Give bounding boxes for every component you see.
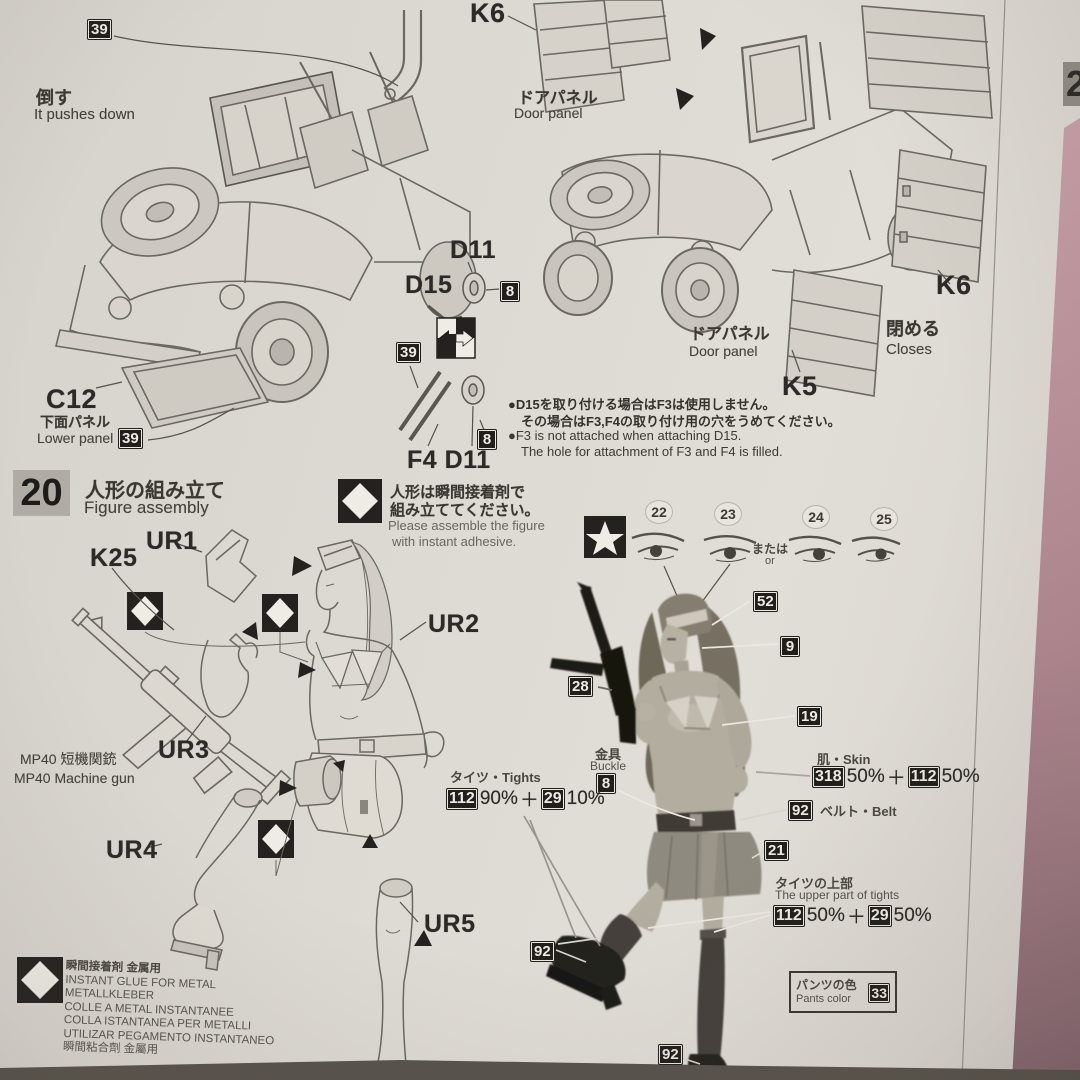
paint-badge-92: 92 <box>530 941 555 962</box>
skin-color-mix: 31850%＋11250% <box>812 763 980 790</box>
closes-label-en: Closes <box>886 341 932 358</box>
plus-sign: ＋ <box>887 763 906 790</box>
step-number-box: 20 <box>13 470 70 516</box>
adhesive-note-en2: with instant adhesive. <box>392 534 516 549</box>
door-panel-right-label-jp: ドアパネル <box>690 320 770 344</box>
paint-badge-52: 52 <box>753 591 778 612</box>
part-label-k25: K25 <box>90 544 137 573</box>
part-label-ur1: UR1 <box>146 527 198 556</box>
paint-badge-39: 39 <box>87 19 112 40</box>
part-label-ur5: UR5 <box>424 910 476 939</box>
part-label-k6-top: K6 <box>470 0 506 29</box>
note-line-3: ●F3 is not attached when attaching D15. <box>508 428 741 443</box>
part-label-ur3: UR3 <box>158 736 210 765</box>
note-line-4: The hole for attachment of F3 and F4 is … <box>521 444 783 459</box>
part-label-d15: D15 <box>405 271 452 300</box>
mix-pct: 90% <box>480 788 518 810</box>
lower-panel-label-en: Lower panel <box>37 430 113 446</box>
left-car-drawing <box>0 0 476 440</box>
mix-pct: 10% <box>567 788 605 810</box>
figure-photo <box>546 582 762 1080</box>
door-panel-right-label-en: Door panel <box>689 343 758 359</box>
part-label-ur4: UR4 <box>106 836 158 865</box>
plus-sign: ＋ <box>520 785 539 812</box>
adhesive-note-jp2: 組み立ててください。 <box>390 499 540 520</box>
paint-badge-92: 92 <box>788 800 813 821</box>
part-label-f4-d11: F4 D11 <box>407 446 491 475</box>
arm-piece <box>201 622 258 717</box>
door-panel-top-label-en: Door panel <box>514 105 583 121</box>
or-label-en: or <box>765 555 775 567</box>
tights-upper-color-mix: 11250%＋2950% <box>773 902 932 929</box>
adhesive-diamond-icon <box>338 479 382 523</box>
buckle-label-en: Buckle <box>590 759 626 773</box>
paint-badge-318: 318 <box>812 766 845 788</box>
tights-label: タイツ・Tights <box>450 767 541 786</box>
paint-badge-29: 29 <box>868 905 892 927</box>
paint-badge-8: 8 <box>477 429 497 450</box>
push-down-label-en: It pushes down <box>34 106 135 123</box>
eye-option-23: 23 <box>714 502 742 526</box>
mix-pct: 50% <box>847 766 885 788</box>
paint-badge-112: 112 <box>773 905 805 927</box>
paint-badge-8: 8 <box>500 281 520 302</box>
part-label-k5: K5 <box>782 371 818 402</box>
adhesive-note-en1: Please assemble the figure <box>388 518 545 533</box>
step-title-en: Figure assembly <box>84 498 209 518</box>
paint-badge-19: 19 <box>797 706 822 727</box>
both-sides-symbol <box>437 318 475 358</box>
glue-diamond-bottom-icon <box>17 957 63 1003</box>
instruction-sheet-photo: 39 倒す It pushes down C12 下面パネル Lower pan… <box>0 0 1080 1080</box>
belt-label: ベルト・Belt <box>820 801 897 820</box>
paint-badge-33: 33 <box>868 983 890 1003</box>
plus-sign: ＋ <box>847 902 866 929</box>
eye-option-25: 25 <box>870 507 898 531</box>
paint-badge-9: 9 <box>780 636 800 657</box>
paint-badge-39: 39 <box>118 428 143 449</box>
mix-pct: 50% <box>894 905 932 927</box>
paint-badge-92: 92 <box>658 1044 683 1065</box>
paint-badge-28: 28 <box>568 676 593 697</box>
part-label-ur2: UR2 <box>428 610 480 639</box>
part-label-c12: C12 <box>46 384 97 415</box>
part-label-d11: D11 <box>450 236 496 265</box>
eye-option-22: 22 <box>645 500 673 524</box>
pants-color-box: パンツの色 Pants color 33 <box>789 971 897 1013</box>
paint-badge-112: 112 <box>446 788 478 810</box>
tights-color-mix: 11290%＋2910% <box>446 785 605 812</box>
tights-upper-label-en: The upper part of tights <box>775 888 899 902</box>
partial-step-number: 2 <box>1063 62 1080 106</box>
paint-badge-29: 29 <box>541 788 565 810</box>
paint-badge-39: 39 <box>396 342 421 363</box>
part-label-k6-right: K6 <box>936 270 972 301</box>
paint-badge-112: 112 <box>908 766 940 788</box>
paint-badge-21: 21 <box>764 840 789 861</box>
mix-pct: 50% <box>807 905 845 927</box>
figure-line-art <box>279 540 444 848</box>
eye-option-24: 24 <box>802 505 830 529</box>
closes-label-jp: 閉める <box>886 315 940 341</box>
high-heel-leg-piece <box>171 789 262 970</box>
mp40-label-en: MP40 Machine gun <box>14 770 135 786</box>
star-symbol-icon <box>584 516 626 558</box>
lower-panel-label-jp: 下面パネル <box>40 412 110 432</box>
mix-pct: 50% <box>942 766 980 788</box>
mp40-label-jp: MP40 短機関銃 <box>20 749 116 769</box>
instant-glue-note: 瞬間接着剤 金属用 INSTANT GLUE FOR METAL METALLK… <box>63 960 277 1062</box>
